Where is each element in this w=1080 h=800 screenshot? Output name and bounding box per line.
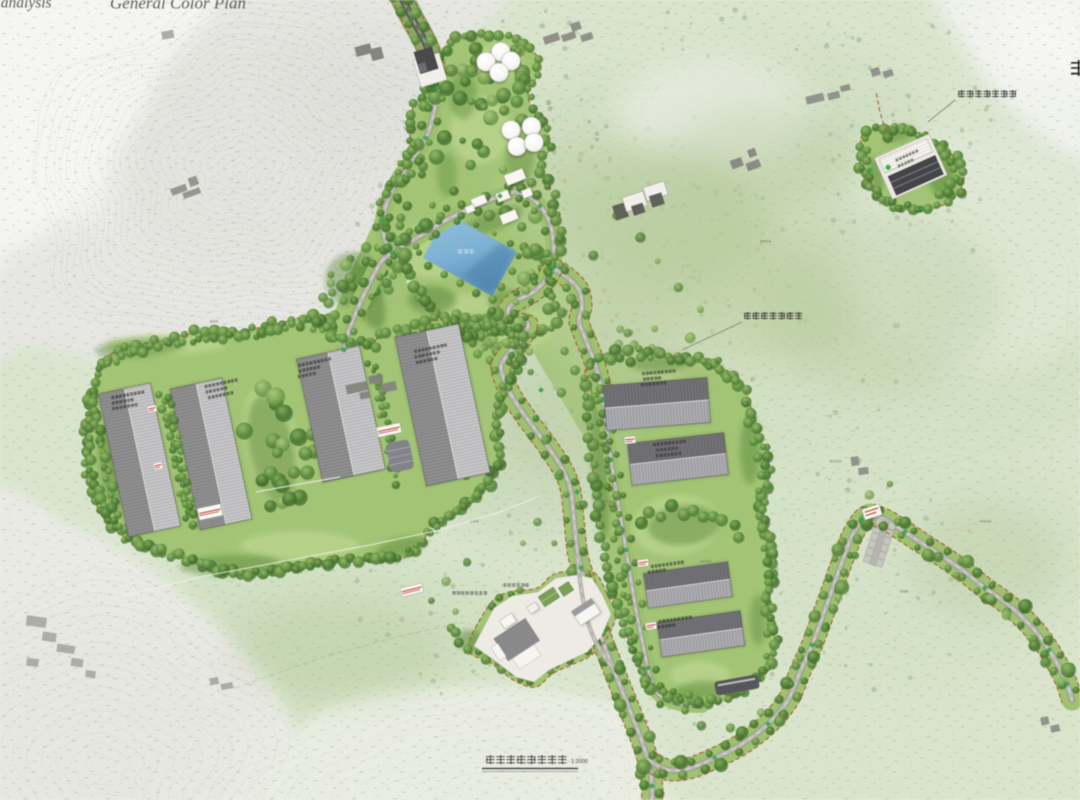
svg-text:General Color Plan: General Color Plan <box>110 0 246 13</box>
svg-text:1:2000: 1:2000 <box>571 759 588 765</box>
svg-text:ry analysis: ry analysis <box>0 0 52 12</box>
